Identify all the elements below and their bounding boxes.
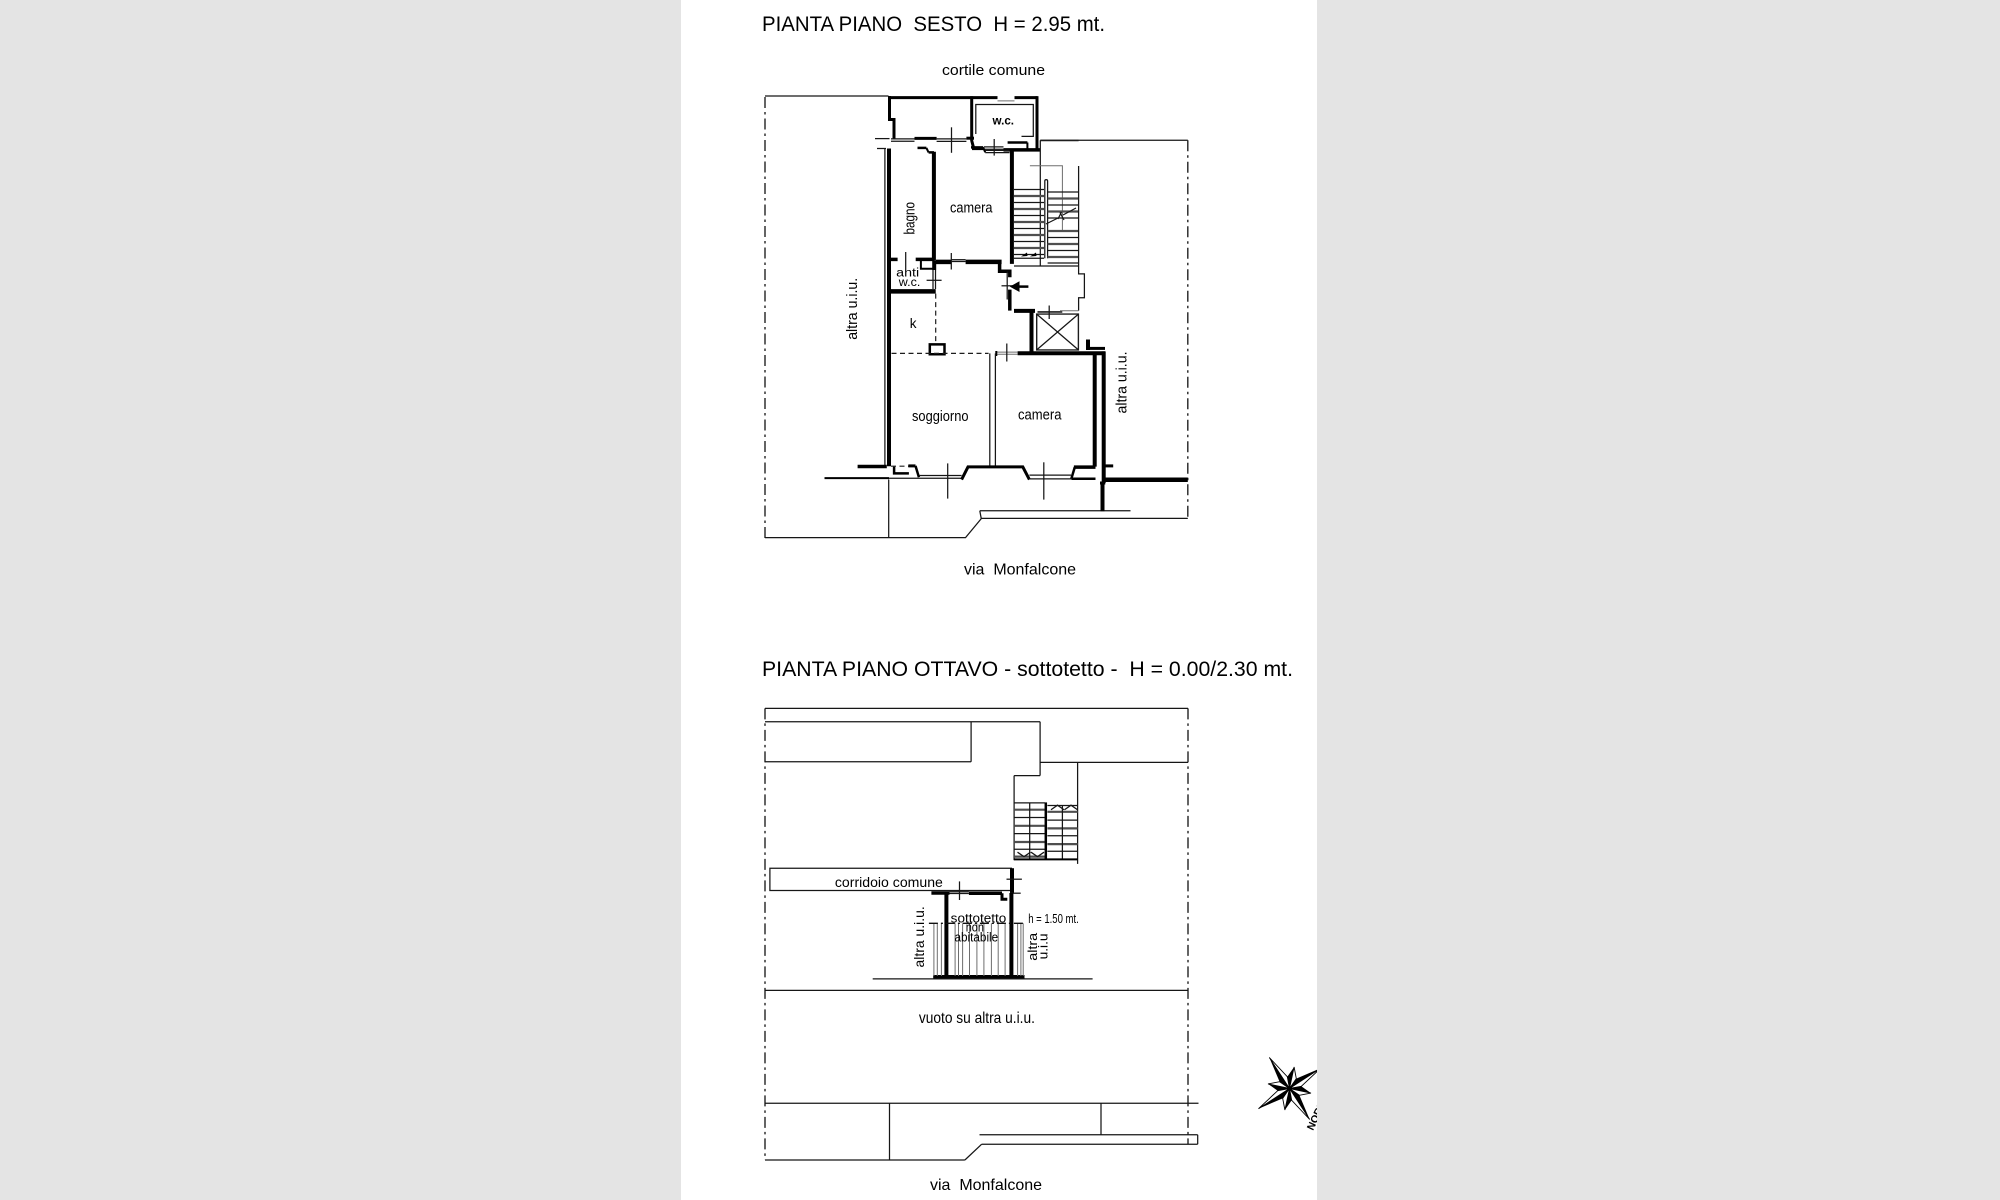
svg-text:altra u.i.u.: altra u.i.u.: [911, 906, 927, 967]
svg-text:k: k: [910, 316, 917, 331]
svg-text:w.c.: w.c.: [992, 114, 1014, 128]
svg-text:PIANTA PIANO SESTO H = 2.95: PIANTA PIANO SESTO H = 2.95 mt.: [762, 13, 1105, 36]
svg-text:camera: camera: [1018, 408, 1062, 424]
svg-text:via Monfalcone: via Monfalcone: [964, 562, 1076, 579]
svg-text:via Monfalcone: via Monfalcone: [930, 1177, 1042, 1194]
svg-text:corridoio comune: corridoio comune: [835, 874, 943, 890]
svg-text:PIANTA PIANO OTTAVO - sottotet: PIANTA PIANO OTTAVO - sottotetto - H = 0…: [762, 658, 1293, 681]
svg-text:h = 1.50 mt.: h = 1.50 mt.: [1028, 912, 1079, 926]
svg-text:u.i.u: u.i.u: [1035, 933, 1050, 959]
svg-text:abitabile: abitabile: [955, 930, 999, 944]
svg-text:cortile comune: cortile comune: [942, 62, 1045, 79]
svg-text:w.c.: w.c.: [898, 277, 921, 289]
svg-text:camera: camera: [950, 201, 993, 217]
svg-text:soggiorno: soggiorno: [912, 409, 969, 425]
svg-text:bagno: bagno: [903, 202, 919, 235]
svg-text:altra u.i.u.: altra u.i.u.: [1114, 352, 1130, 414]
svg-text:vuoto su altra u.i.u.: vuoto su altra u.i.u.: [919, 1010, 1035, 1027]
svg-text:altra u.i.u.: altra u.i.u.: [845, 278, 861, 340]
